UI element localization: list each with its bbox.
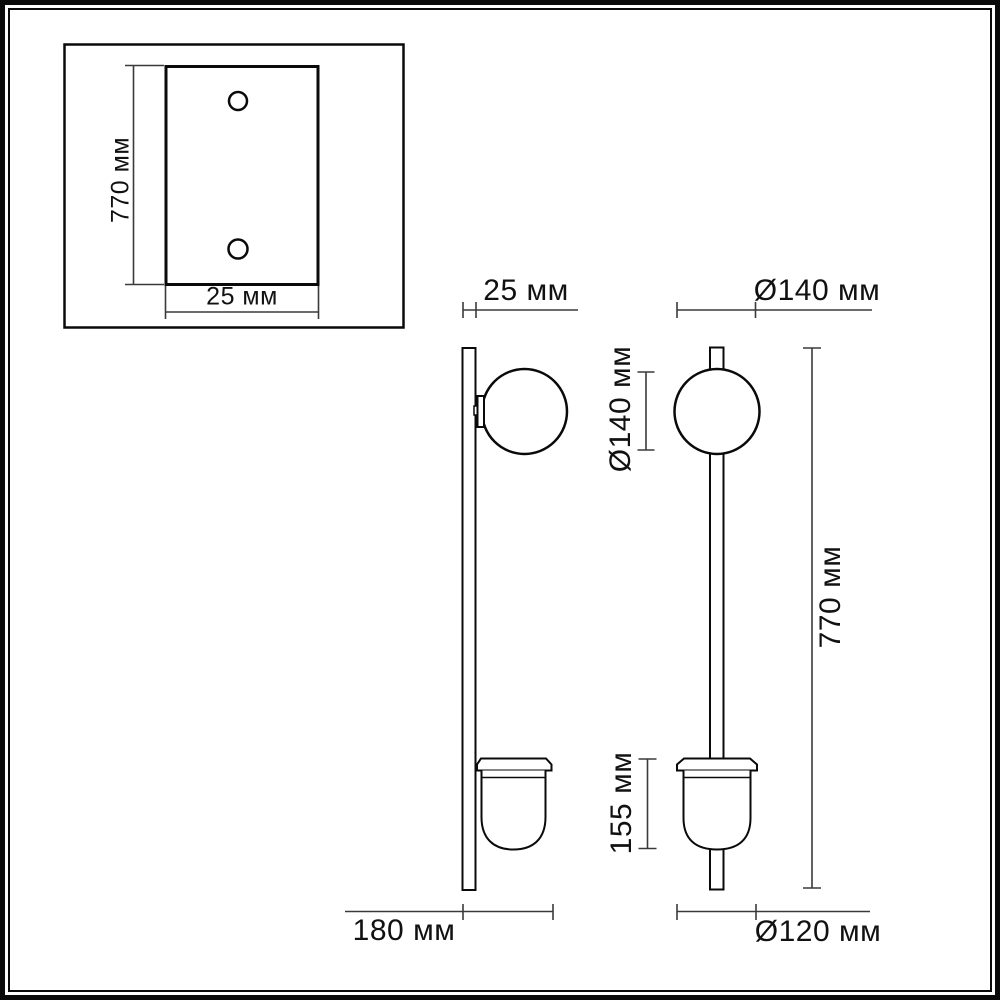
wall-bar-side (463, 348, 476, 890)
dim-label-top-diameter: Ø140 мм (754, 276, 880, 306)
mounting-hole-top (229, 92, 247, 110)
dim-label-plate-thickness: 25 мм (483, 276, 568, 306)
globe-diameter-dimension (638, 372, 655, 450)
dim-label-shade-diameter: Ø120 мм (755, 917, 881, 947)
dimensional-drawing-page: 770 мм 25 мм 25 мм 180 мм Ø140 мм Ø140 м… (0, 0, 1000, 1000)
shade-rim-front (677, 759, 757, 771)
drawing-canvas (0, 0, 1000, 1000)
dim-label-plate-width: 25 мм (206, 285, 278, 310)
dim-label-depth: 180 мм (353, 916, 456, 946)
glass-shade-front (684, 771, 751, 850)
shade-rim-side (477, 759, 552, 771)
dim-label-total-height: 770 мм (816, 546, 846, 649)
glass-shade-side (482, 771, 546, 850)
glass-globe-side (482, 369, 567, 454)
dim-label-plate-height: 770 мм (109, 137, 134, 223)
dim-label-shade-height: 155 мм (607, 752, 637, 855)
dim-label-globe-diameter: Ø140 мм (606, 346, 636, 472)
shade-height-dimension (639, 759, 657, 849)
mounting-hole-bottom (229, 240, 248, 259)
side-view (345, 302, 578, 920)
globe-bracket (478, 396, 485, 427)
glass-globe-front (675, 369, 760, 454)
